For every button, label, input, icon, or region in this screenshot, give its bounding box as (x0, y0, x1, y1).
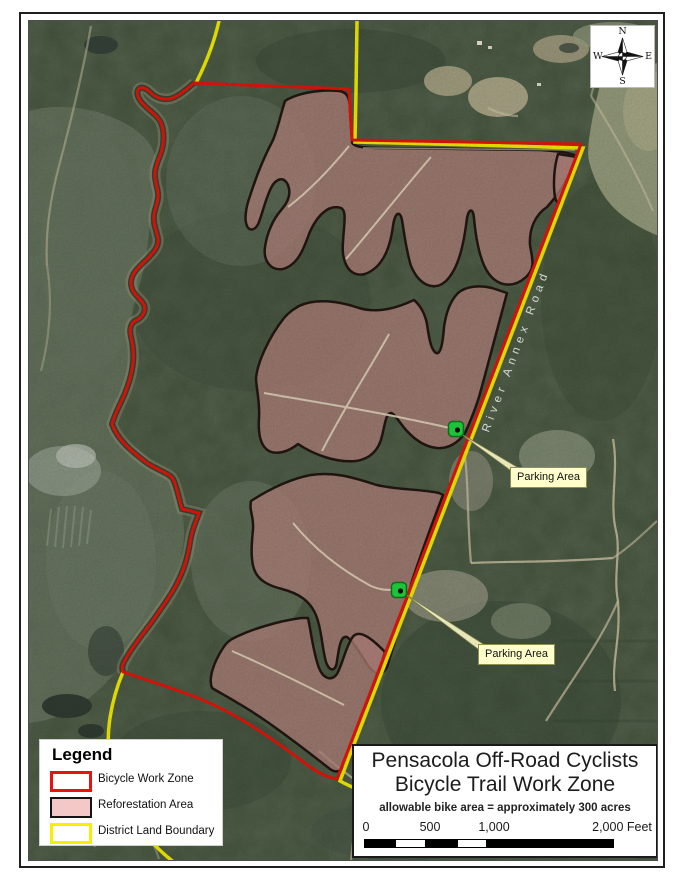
legend-box: Legend Bicycle Work Zone Reforestation A… (39, 739, 223, 846)
map-document-page: River Annex Road (0, 0, 687, 886)
scale-tick-2000-feet: 2,000 Feet (592, 820, 652, 834)
legend-swatch-district-boundary (50, 823, 92, 844)
parking-callout-1: Parking Area (510, 467, 587, 488)
compass-south-label: S (619, 76, 626, 87)
parking-callout-2-label: Parking Area (485, 648, 548, 660)
legend-swatch-reforestation (50, 797, 92, 818)
compass-north-label: N (618, 26, 626, 37)
photo-grain (29, 21, 658, 861)
aerial-imagery: River Annex Road (29, 21, 658, 861)
map-title-line1: Pensacola Off-Road Cyclists (354, 749, 656, 773)
scale-bar-segment (457, 839, 487, 848)
scale-tick-1000: 1,000 (478, 820, 509, 834)
compass-west-label: W (593, 50, 603, 61)
compass-rose: N E S W (590, 25, 655, 88)
title-box: Pensacola Off-Road Cyclists Bicycle Trai… (352, 744, 658, 858)
legend-label: Reforestation Area (98, 799, 193, 811)
legend-label: District Land Boundary (98, 825, 214, 837)
scale-bar-segment (364, 839, 395, 848)
parking-callout-2: Parking Area (478, 644, 555, 665)
scale-tick-0: 0 (363, 820, 370, 834)
parking-callout-1-label: Parking Area (517, 471, 580, 483)
map-subtitle: allowable bike area = approximately 300 … (354, 802, 656, 814)
scale-bar-segment (487, 839, 614, 848)
map-area: River Annex Road (28, 20, 658, 861)
legend-label: Bicycle Work Zone (98, 773, 194, 785)
scale-tick-500: 500 (420, 820, 441, 834)
map-title-line2: Bicycle Trail Work Zone (354, 773, 656, 797)
scale-bar-segment (395, 839, 426, 848)
compass-east-label: E (645, 50, 652, 61)
legend-swatch-work-zone (50, 771, 92, 792)
scale-bar-segment (426, 839, 457, 848)
scale-bar (364, 839, 614, 848)
legend-title: Legend (52, 745, 112, 765)
